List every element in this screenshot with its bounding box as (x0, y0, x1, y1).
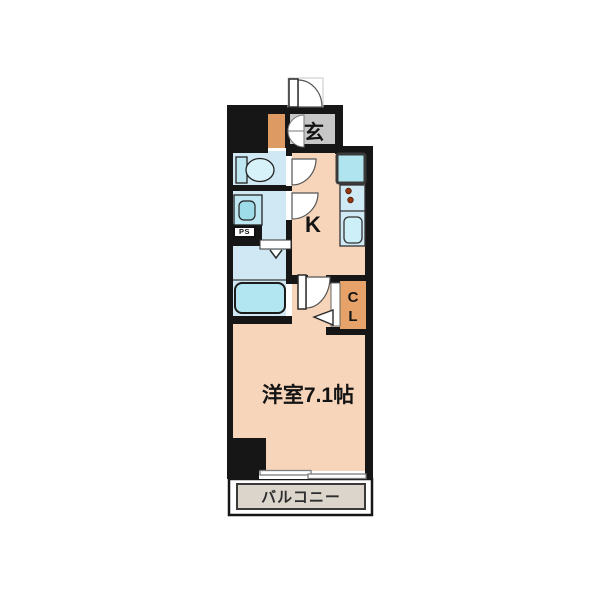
balcony-label: バルコニー (237, 484, 365, 509)
closet-label: C L (340, 284, 366, 330)
kitchen-unit (337, 154, 365, 246)
floor-plan-drawing (0, 0, 600, 600)
stove-burner-icon (346, 188, 352, 194)
stove-burner-icon (348, 197, 354, 203)
kitchen-label: K (298, 211, 328, 238)
floor-plan: 玄 K C L PS 洋室7.1帖 バルコニー (0, 0, 600, 600)
shoe-cabinet (266, 112, 288, 148)
western-room-label: 洋室7.1帖 (233, 380, 383, 407)
toilet-icon (236, 157, 274, 183)
sliding-window-icon (259, 471, 366, 480)
entrance-door-swing-icon (288, 78, 323, 107)
kitchen-sink-icon (344, 217, 362, 243)
refrigerator-icon (337, 154, 365, 183)
washbasin-icon (234, 195, 262, 225)
bathtub-icon (233, 280, 286, 313)
pipe-space-label: PS (233, 226, 256, 238)
entrance-label: 玄 (293, 116, 335, 144)
